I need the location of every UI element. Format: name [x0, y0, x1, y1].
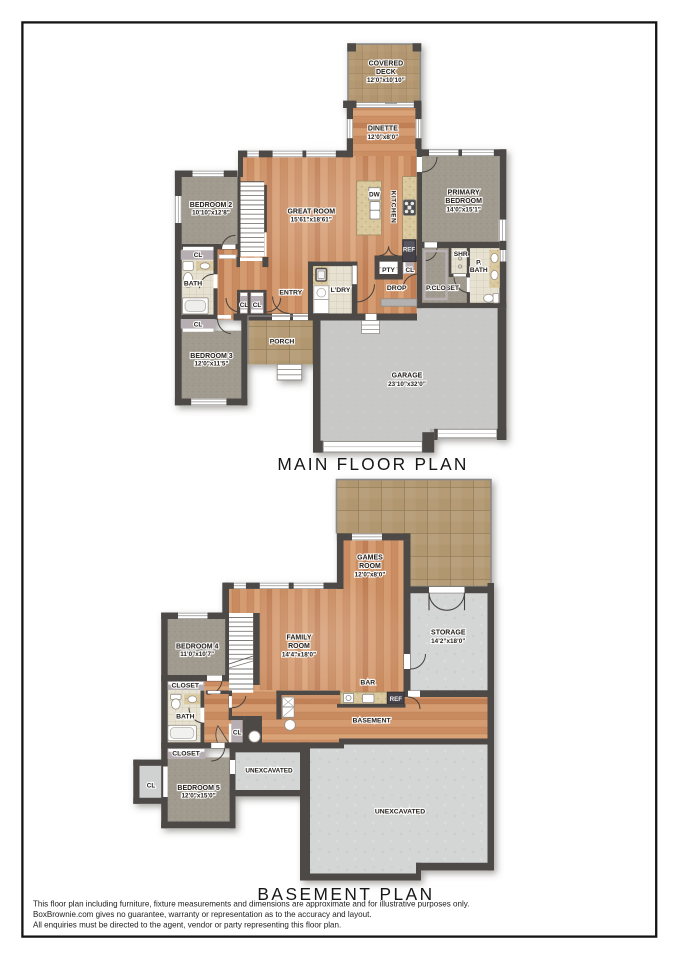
- svg-text:CL: CL: [240, 302, 249, 309]
- svg-text:CL: CL: [233, 730, 242, 737]
- svg-text:UNEXCAVATED: UNEXCAVATED: [375, 809, 425, 816]
- svg-text:PTY: PTY: [382, 267, 395, 274]
- svg-text:DINETTE: DINETTE: [368, 125, 398, 132]
- svg-text:REF: REF: [390, 696, 403, 703]
- svg-text:BoxBrownie.com gives no guaran: BoxBrownie.com gives no guarantee, warra…: [33, 910, 372, 919]
- svg-text:10’10”x12’8”: 10’10”x12’8”: [192, 210, 230, 217]
- svg-text:This floor plan including furn: This floor plan including furniture, fix…: [33, 899, 469, 908]
- svg-text:12’0”x11’5”: 12’0”x11’5”: [195, 361, 229, 368]
- svg-text:BASEMENT: BASEMENT: [353, 717, 392, 724]
- svg-text:CL: CL: [147, 783, 156, 790]
- svg-text:BEDROOM 5: BEDROOM 5: [177, 785, 220, 792]
- svg-text:PRIMARY: PRIMARY: [448, 190, 480, 197]
- svg-text:CL: CL: [406, 267, 415, 274]
- svg-text:L’DRY: L’DRY: [331, 287, 351, 294]
- svg-text:REF: REF: [403, 247, 416, 254]
- svg-text:UNEXCAVATED: UNEXCAVATED: [245, 767, 293, 774]
- svg-text:STORAGE: STORAGE: [431, 630, 466, 637]
- svg-text:P.CLOSET: P.CLOSET: [426, 285, 460, 292]
- svg-text:GREAT ROOM: GREAT ROOM: [287, 209, 335, 216]
- svg-text:CL: CL: [194, 321, 203, 328]
- svg-text:BEDROOM: BEDROOM: [445, 198, 482, 205]
- svg-text:CL: CL: [194, 252, 203, 259]
- svg-text:DW: DW: [369, 192, 381, 199]
- svg-text:CL: CL: [253, 302, 262, 309]
- svg-text:14’2”x18’0”: 14’2”x18’0”: [431, 638, 465, 645]
- svg-text:14’4”x18’0”: 14’4”x18’0”: [282, 652, 316, 659]
- svg-text:12’0”x8’0”: 12’0”x8’0”: [367, 134, 398, 141]
- svg-text:COVERED: COVERED: [369, 61, 404, 68]
- svg-text:PORCH: PORCH: [270, 339, 295, 346]
- svg-text:CLOSET: CLOSET: [172, 682, 200, 689]
- svg-text:DECK: DECK: [376, 69, 396, 76]
- svg-text:ROOM: ROOM: [288, 643, 310, 650]
- svg-text:15’61”x18’61”: 15’61”x18’61”: [291, 217, 332, 224]
- svg-text:FAMILY: FAMILY: [286, 635, 311, 642]
- svg-text:KITCHEN: KITCHEN: [390, 191, 397, 224]
- svg-text:All enquiries must be directed: All enquiries must be directed to the ag…: [33, 920, 341, 929]
- svg-text:MAIN FLOOR PLAN: MAIN FLOOR PLAN: [277, 454, 468, 474]
- svg-text:BATH: BATH: [470, 267, 488, 274]
- svg-text:P.: P.: [476, 259, 482, 266]
- svg-text:GAMES: GAMES: [357, 555, 383, 562]
- svg-text:GARAGE: GARAGE: [392, 373, 423, 380]
- svg-text:ENTRY: ENTRY: [279, 290, 302, 297]
- svg-text:12’0”x8’0”: 12’0”x8’0”: [355, 572, 386, 579]
- svg-text:23’10”x32’0”: 23’10”x32’0”: [388, 381, 426, 388]
- svg-text:DROP: DROP: [387, 285, 407, 292]
- svg-text:12’0”x10’10”: 12’0”x10’10”: [367, 77, 405, 84]
- svg-text:CLOSET: CLOSET: [172, 750, 200, 757]
- svg-text:BAR: BAR: [360, 680, 375, 687]
- svg-text:BEDROOM 2: BEDROOM 2: [190, 202, 233, 209]
- svg-text:ROOM: ROOM: [359, 563, 381, 570]
- svg-text:BEDROOM 4: BEDROOM 4: [176, 644, 219, 651]
- svg-text:12’0”x15’0”: 12’0”x15’0”: [181, 793, 215, 800]
- svg-text:14’0”x15’1”: 14’0”x15’1”: [447, 207, 481, 214]
- svg-text:11’0”x10’7”: 11’0”x10’7”: [180, 651, 214, 658]
- svg-text:BATH: BATH: [176, 714, 194, 721]
- svg-text:BATH: BATH: [184, 281, 202, 288]
- svg-text:BEDROOM 3: BEDROOM 3: [190, 353, 233, 360]
